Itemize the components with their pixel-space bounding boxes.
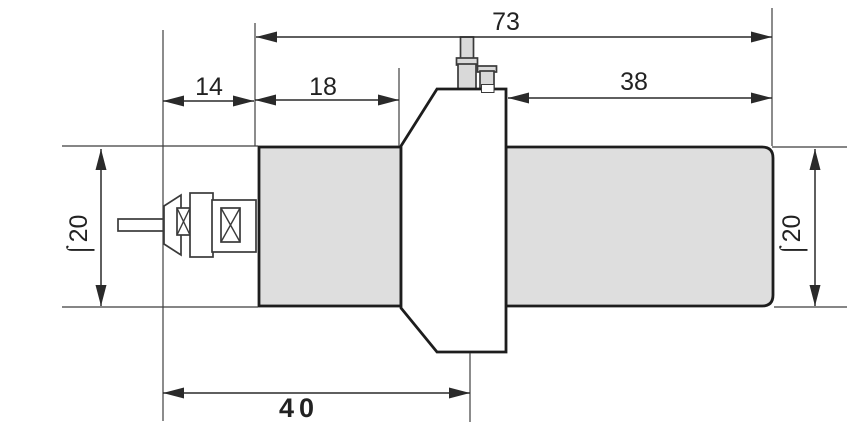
sensor-body	[259, 85, 773, 353]
connector-pin	[118, 219, 164, 231]
dimension-rear-body: 38	[508, 68, 772, 98]
dimension-label-diameter-left: ⌠20	[65, 215, 95, 258]
dimension-diameter-right: ⌠20	[778, 149, 815, 306]
dimension-label-14: 14	[195, 73, 223, 101]
connector-collar	[190, 193, 213, 257]
center-housing	[401, 89, 506, 352]
connector-plug	[118, 193, 256, 257]
terminal-large-base	[458, 64, 476, 90]
dimension-label-18: 18	[309, 73, 337, 101]
front-cylinder-body	[259, 147, 401, 306]
sensor-dimension-drawing: 73 14 18 38 40 ⌠20 ⌠20	[0, 0, 859, 434]
top-terminals	[457, 37, 497, 90]
dimension-label-38: 38	[620, 68, 648, 96]
technical-drawing-canvas: 73 14 18 38 40 ⌠20 ⌠20	[0, 0, 859, 434]
dimension-plug-section: 14	[163, 73, 254, 101]
dimension-overall-length: 73	[256, 8, 772, 37]
terminal-small-foot	[482, 85, 495, 93]
dimension-label-73: 73	[492, 8, 520, 36]
dimension-label-diameter-right: ⌠20	[778, 215, 808, 258]
dimension-mounting-length: 40	[163, 393, 470, 423]
rear-cylinder-body	[506, 147, 773, 306]
dimension-diameter-left: ⌠20	[65, 149, 101, 306]
terminal-large-stem	[461, 37, 474, 60]
dimension-label-40: 40	[279, 393, 319, 423]
dimension-front-body: 18	[255, 73, 399, 101]
